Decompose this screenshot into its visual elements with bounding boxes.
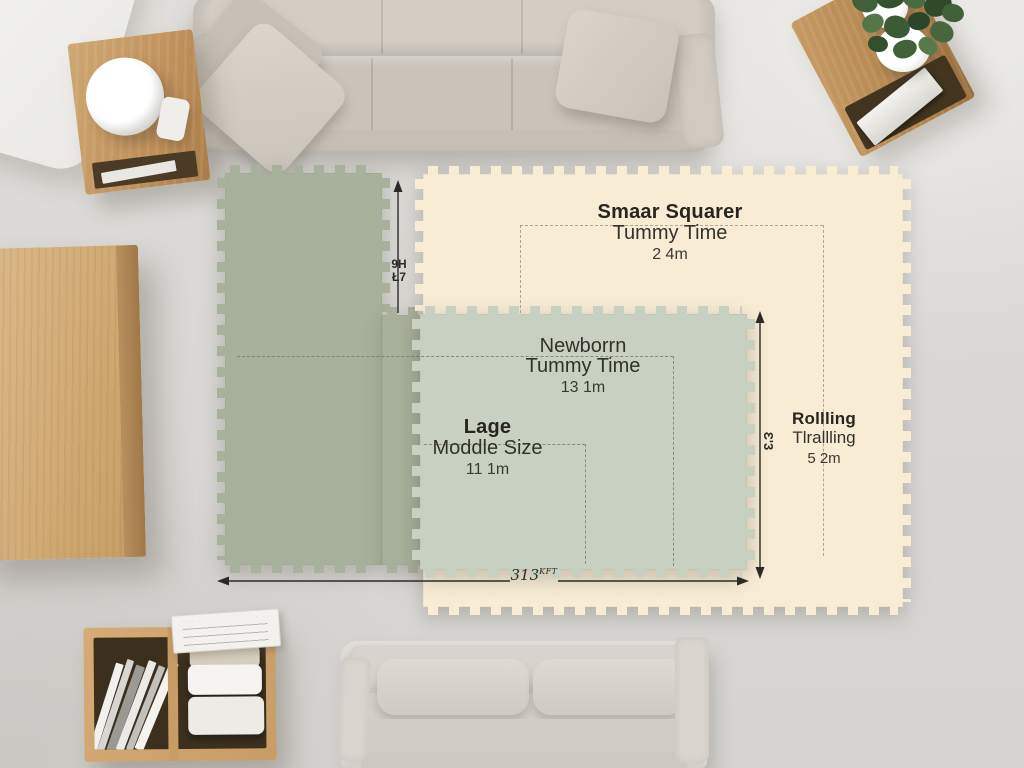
mat-label-newborn: Newborrn Tummy Time 13 1m xyxy=(468,336,698,397)
mat-label-title: Smaar Squarer xyxy=(545,202,795,223)
dimension-label-bottom-width: 313KFT xyxy=(503,566,565,584)
magazine xyxy=(101,160,177,184)
mat-label-title: Lage xyxy=(405,417,570,438)
leaf xyxy=(941,2,966,24)
sofa-top xyxy=(193,0,715,152)
towel xyxy=(188,696,264,735)
mat-teeth xyxy=(387,564,423,573)
dimension-value: Ł7 xyxy=(384,271,414,284)
cushion-seam xyxy=(521,0,523,54)
mat-label-title: Newborrn xyxy=(468,336,698,356)
leaf xyxy=(867,35,888,53)
sofa-bottom-front-edge xyxy=(361,752,687,768)
mat-teeth xyxy=(415,179,424,311)
dimension-unit: KFT xyxy=(539,567,557,576)
mat-label-rolling: Rollling Tlrallling 5 2m xyxy=(778,409,870,468)
mat-green-tall-section xyxy=(225,173,382,565)
mat-teeth xyxy=(230,564,377,573)
dimension-label-right-height: Ɛ'3 xyxy=(746,422,776,460)
mat-teeth xyxy=(217,178,226,560)
plant-leaves xyxy=(838,0,968,79)
newspaper xyxy=(171,608,281,653)
dashed-guide xyxy=(585,444,586,564)
mat-label-subtitle: Tummy Time xyxy=(545,223,795,243)
side-table-shelf-opening xyxy=(92,150,198,188)
sofa-bottom-seat xyxy=(355,719,693,755)
books xyxy=(856,67,943,146)
leaf xyxy=(859,10,887,37)
dimension-value: Ɛ'3 xyxy=(761,432,776,450)
cushion-seam xyxy=(511,58,513,130)
mat-teeth xyxy=(425,306,742,315)
mat-teeth xyxy=(425,569,742,578)
sofa-arm-right xyxy=(675,637,709,763)
mat-teeth xyxy=(428,166,898,175)
throw-pillow xyxy=(553,7,681,125)
mat-teeth xyxy=(230,165,377,174)
mat-label-title: Rollling xyxy=(778,409,870,428)
mat-teeth xyxy=(381,178,390,312)
cushion-seam xyxy=(381,0,383,54)
mat-label-small-square: Smaar Squarer Tummy Time 2 4m xyxy=(545,202,795,264)
mat-label-size: 11 1m xyxy=(405,460,570,479)
dimension-label-left-height: 9H Ł7 xyxy=(384,258,414,284)
dashed-guide xyxy=(520,225,521,313)
cushion-seam xyxy=(371,58,373,130)
seat-cushion xyxy=(377,659,529,715)
sofa-bottom xyxy=(341,641,707,768)
mat-label-large-middle: Lage Moddle Size 11 1m xyxy=(405,417,570,479)
dashed-guide xyxy=(823,225,824,556)
mat-surface xyxy=(225,173,382,565)
dimension-value: 313 xyxy=(510,566,539,584)
mat-teeth xyxy=(428,606,898,615)
mat-label-size: 13 1m xyxy=(468,378,698,397)
leaf xyxy=(891,36,920,61)
white-mug xyxy=(82,53,169,140)
mat-label-subtitle: Tummy Time xyxy=(468,356,698,376)
coffee-table-top xyxy=(0,245,124,561)
side-table-left xyxy=(67,29,211,195)
mat-label-subtitle: Moddle Size xyxy=(405,438,570,458)
mat-label-size: 5 2m xyxy=(778,449,870,468)
mat-teeth xyxy=(902,179,911,602)
towel xyxy=(188,664,262,695)
coffee-table xyxy=(0,245,146,561)
sofa-arm-left xyxy=(337,657,371,762)
seat-cushion xyxy=(533,659,685,715)
mat-label-subtitle: Tlrallling xyxy=(778,428,870,447)
living-room-scene: Smaar Squarer Tummy Time 2 4m Newborrn T… xyxy=(0,0,1024,768)
shelf-interior xyxy=(94,636,267,749)
mat-label-size: 2 4m xyxy=(545,245,795,264)
